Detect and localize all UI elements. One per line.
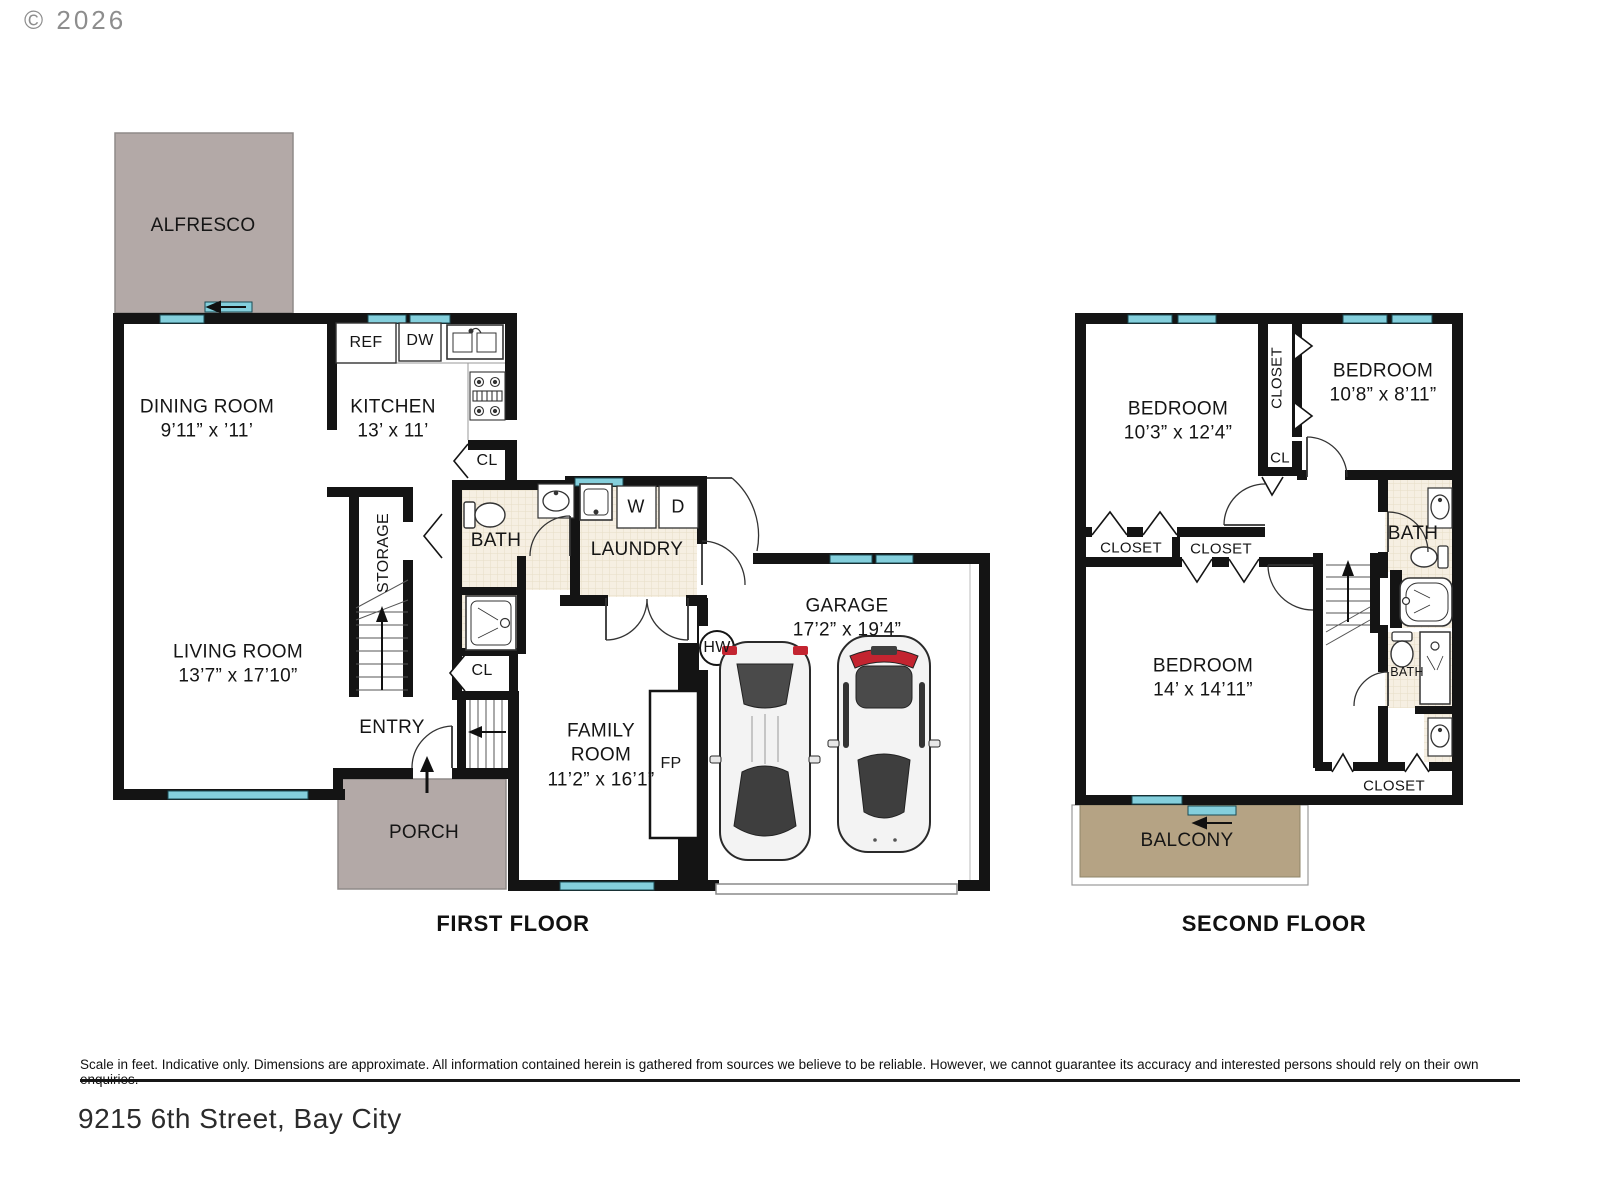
bath-sink bbox=[538, 484, 574, 518]
label-cl-kitchen: CL bbox=[476, 451, 497, 471]
label-kitchen: KITCHEN13’ x 11’ bbox=[350, 396, 436, 445]
footer-divider bbox=[80, 1079, 1520, 1082]
label-garage: GARAGE17’2” x 19’4” bbox=[793, 595, 901, 644]
bath3-shower bbox=[1420, 632, 1450, 704]
stairs2-up-arrow-icon bbox=[1342, 560, 1354, 576]
label-closet-mid: CLOSET bbox=[1190, 539, 1252, 558]
label-closet-vertical: CLOSET bbox=[1267, 347, 1286, 409]
copyright-text: © 2026 bbox=[24, 5, 126, 36]
label-bedroom2: BEDROOM10’8” x 8’11” bbox=[1329, 360, 1436, 409]
stove bbox=[470, 372, 505, 420]
garage-cars bbox=[710, 636, 940, 860]
label-family-room: FAMILY ROOM 11’2” x 16’1” bbox=[547, 720, 654, 793]
label-dining-room: DINING ROOM9’11” x ’11’ bbox=[140, 396, 274, 445]
label-entry: ENTRY bbox=[359, 716, 425, 740]
car-left bbox=[710, 642, 820, 860]
second-floor-title: SECOND FLOOR bbox=[1182, 911, 1366, 937]
address-text: 9215 6th Street, Bay City bbox=[78, 1103, 402, 1135]
shower bbox=[466, 596, 516, 650]
bath3-toilet-lower bbox=[1391, 632, 1413, 667]
second-floor-stairs bbox=[1326, 560, 1370, 645]
label-fp: FP bbox=[660, 754, 681, 774]
label-closet-left: CLOSET bbox=[1100, 538, 1162, 557]
balcony-slider-door bbox=[1188, 806, 1236, 815]
label-cl-hall: CL bbox=[471, 661, 492, 681]
label-bath1: BATH bbox=[471, 529, 521, 553]
kitchen-sink bbox=[447, 325, 503, 359]
floorplan-page: © 2026 ALFRESCO DINING ROOM9’11” x ’11’ … bbox=[0, 0, 1600, 1200]
label-bath-lower: BATH bbox=[1390, 664, 1424, 680]
label-porch: PORCH bbox=[389, 821, 459, 845]
label-balcony: BALCONY bbox=[1141, 829, 1234, 853]
garage-door bbox=[716, 884, 957, 894]
bathtub bbox=[1400, 578, 1452, 626]
bath3-sink-lower bbox=[1428, 718, 1452, 756]
label-bedroom3: BEDROOM14’ x 14’11” bbox=[1153, 655, 1253, 704]
label-ref: REF bbox=[350, 333, 383, 353]
label-cl-small: CL bbox=[1270, 448, 1290, 467]
label-bath-upper: BATH bbox=[1388, 522, 1438, 546]
label-alfresco: ALFRESCO bbox=[151, 214, 256, 238]
first-floor-title: FIRST FLOOR bbox=[436, 911, 589, 937]
label-hw: HW bbox=[703, 638, 730, 658]
disclaimer-text: Scale in feet. Indicative only. Dimensio… bbox=[80, 1057, 1520, 1087]
laundry-sink bbox=[580, 484, 612, 520]
label-laundry: LAUNDRY bbox=[591, 538, 684, 562]
label-dryer: D bbox=[671, 495, 684, 518]
bath2-toilet-upper bbox=[1411, 546, 1448, 568]
label-living-room: LIVING ROOM13’7” x 17’10” bbox=[173, 641, 303, 690]
label-storage: STORAGE bbox=[374, 513, 394, 593]
label-washer: W bbox=[627, 495, 644, 518]
label-dw: DW bbox=[406, 331, 433, 351]
car-right bbox=[828, 636, 940, 852]
toilet bbox=[464, 502, 505, 528]
label-closet-bottom: CLOSET bbox=[1363, 776, 1425, 795]
label-bedroom1: BEDROOM10’3” x 12’4” bbox=[1124, 398, 1232, 447]
